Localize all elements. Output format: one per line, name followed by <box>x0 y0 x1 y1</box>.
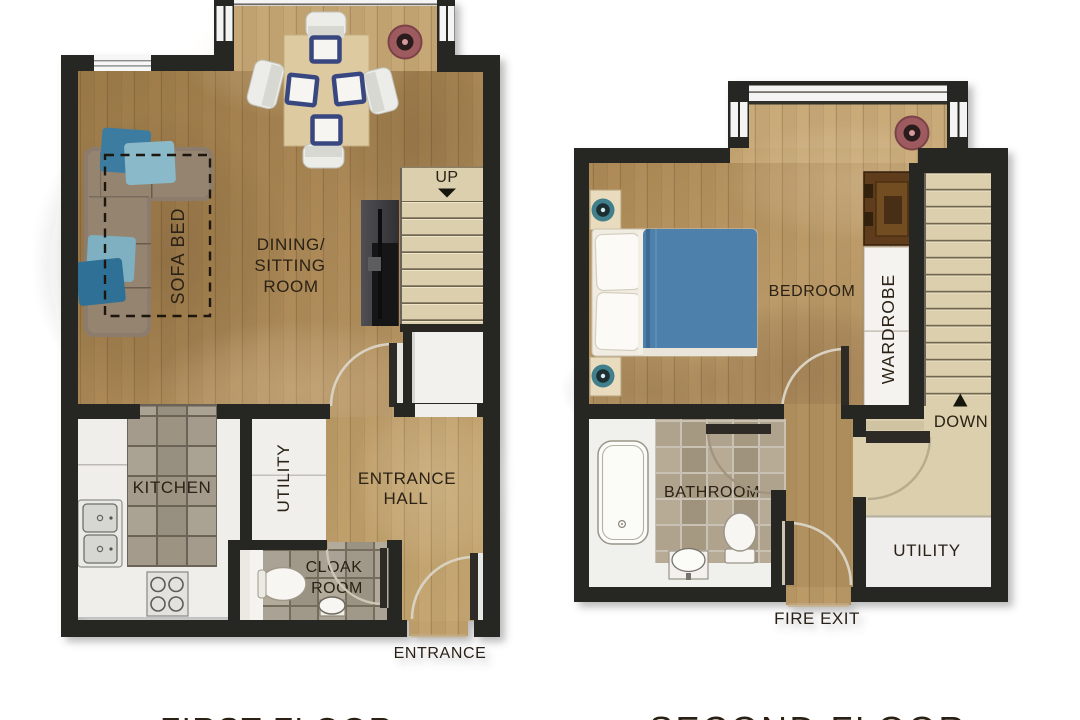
svg-text:DOWN: DOWN <box>934 413 988 431</box>
svg-text:WARDROBE: WARDROBE <box>878 274 898 384</box>
svg-text:KITCHEN: KITCHEN <box>133 478 212 497</box>
svg-text:BATHROOM: BATHROOM <box>664 484 760 501</box>
svg-text:SITTING: SITTING <box>254 256 325 275</box>
svg-text:ENTRANCE: ENTRANCE <box>358 469 456 488</box>
svg-text:UP: UP <box>435 169 458 186</box>
svg-text:UTILITY: UTILITY <box>274 444 293 513</box>
svg-text:DINING/: DINING/ <box>257 235 325 254</box>
svg-text:FIRE EXIT: FIRE EXIT <box>774 609 860 628</box>
svg-text:FIRST FLOOR: FIRST FLOOR <box>160 711 394 720</box>
svg-text:BEDROOM: BEDROOM <box>769 283 856 300</box>
svg-text:SOFA BED: SOFA BED <box>168 207 188 304</box>
svg-text:SECOND FLOOR: SECOND FLOOR <box>649 709 967 720</box>
svg-text:HALL: HALL <box>384 489 429 508</box>
svg-text:ROOM: ROOM <box>263 277 318 296</box>
svg-text:ROOM: ROOM <box>311 580 363 597</box>
svg-text:UTILITY: UTILITY <box>893 541 961 560</box>
svg-text:ENTRANCE: ENTRANCE <box>394 645 487 662</box>
